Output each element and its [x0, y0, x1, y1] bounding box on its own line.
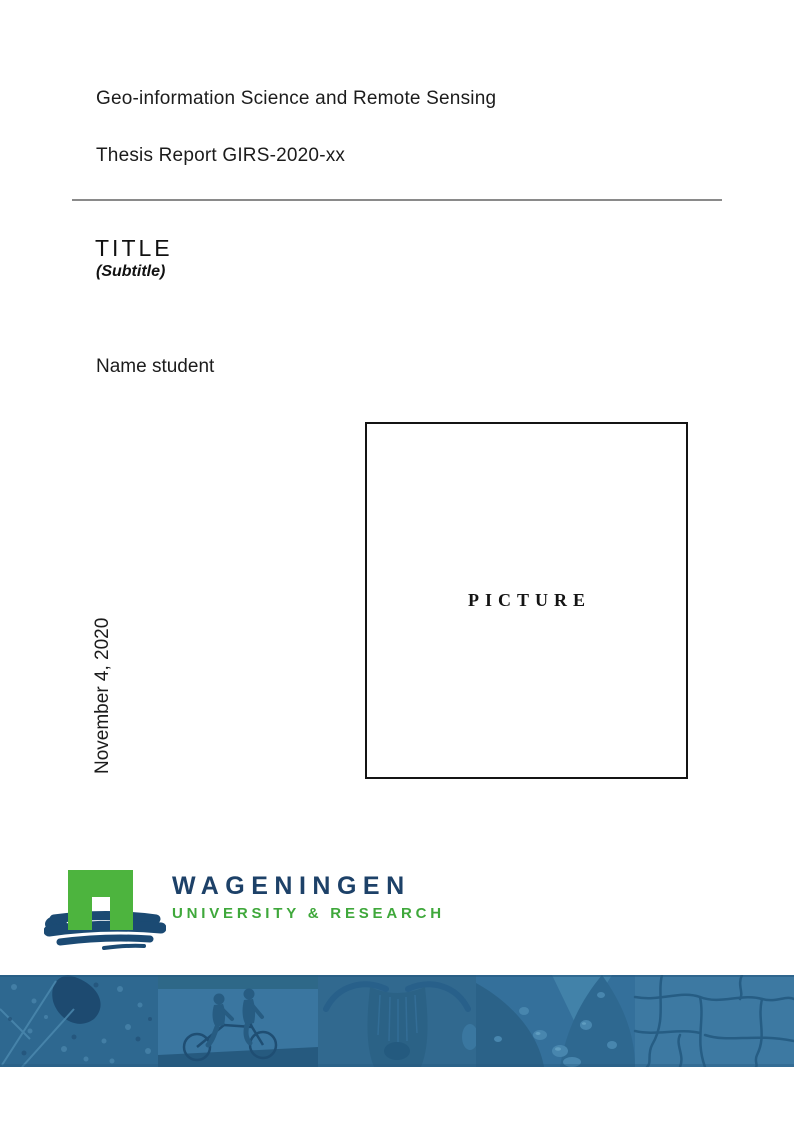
author-name: Name student	[96, 356, 214, 378]
brush-stroke-icon	[45, 916, 161, 949]
strip-segment-highland-cow-image	[318, 975, 478, 1067]
university-name: WAGENINGEN	[172, 872, 411, 901]
report-number: Thesis Report GIRS-2020-xx	[96, 145, 345, 167]
thesis-subtitle: (Subtitle)	[96, 263, 165, 281]
strip-top-edge	[0, 975, 794, 977]
university-tagline: UNIVERSITY & RESEARCH	[172, 905, 445, 922]
publication-date: November 4, 2020	[92, 599, 114, 774]
thesis-cover-page: Geo-information Science and Remote Sensi…	[0, 0, 794, 1123]
strip-bottom-edge	[0, 1064, 794, 1067]
department-name: Geo-information Science and Remote Sensi…	[96, 88, 496, 110]
header-divider	[72, 199, 722, 201]
footer-photo-strip	[0, 975, 794, 1067]
strip-segment-cracked-earth-image	[635, 975, 794, 1067]
strip-segment-leaf-droplets-image	[476, 975, 635, 1067]
strip-segment-aerial-map-image	[0, 975, 158, 1067]
picture-placeholder-box: PICTURE	[365, 422, 688, 779]
thesis-title: TITLE	[95, 235, 173, 262]
picture-placeholder-label: PICTURE	[462, 590, 591, 611]
wageningen-logo-icon	[44, 862, 166, 950]
strip-segment-tandem-cyclists-image	[158, 975, 318, 1067]
